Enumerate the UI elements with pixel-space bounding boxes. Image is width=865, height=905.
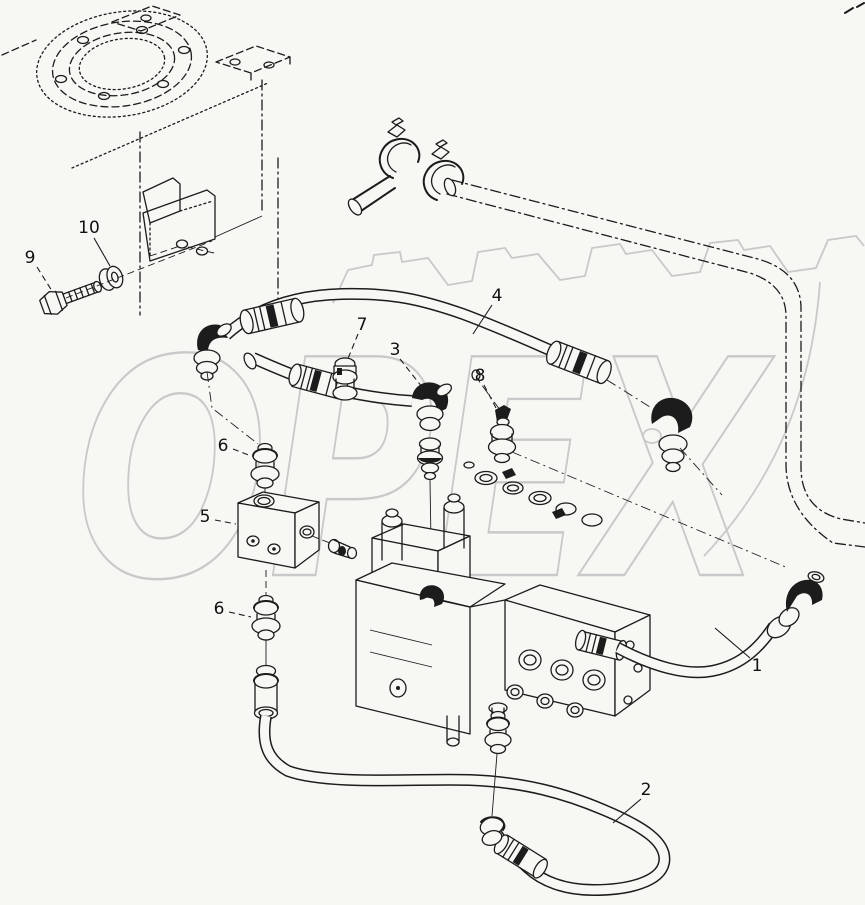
callout-label-9: 9 xyxy=(25,248,36,268)
callout-label-3: 3 xyxy=(390,340,401,360)
tee-fitting-7 xyxy=(333,358,357,400)
valve-bottom-fitting xyxy=(485,712,511,754)
callout-leader xyxy=(37,267,52,291)
callout-label-6: 6 xyxy=(214,599,225,619)
callout-label-6: 6 xyxy=(218,436,229,456)
bolt-axis xyxy=(66,241,214,298)
callout-label-1: 1 xyxy=(752,656,763,676)
hose-coupling xyxy=(254,666,278,720)
valve-block-5 xyxy=(238,492,319,568)
callout-label-2: 2 xyxy=(641,780,652,800)
callout-label-4: 4 xyxy=(492,286,503,306)
callout-leader xyxy=(94,238,110,266)
parts-diagram-page: OPEX xyxy=(0,0,865,905)
hydraulic-tank xyxy=(2,0,290,315)
callout-label-5: 5 xyxy=(200,507,211,527)
hose-2 xyxy=(264,712,664,891)
parts-diagram: OPEX xyxy=(0,0,865,905)
callout-label-7: 7 xyxy=(357,315,368,335)
corner-mark xyxy=(845,3,864,13)
callout-label-10: 10 xyxy=(78,218,100,238)
callout-label-8: 8 xyxy=(475,366,486,386)
clamp-assembly xyxy=(346,118,464,217)
